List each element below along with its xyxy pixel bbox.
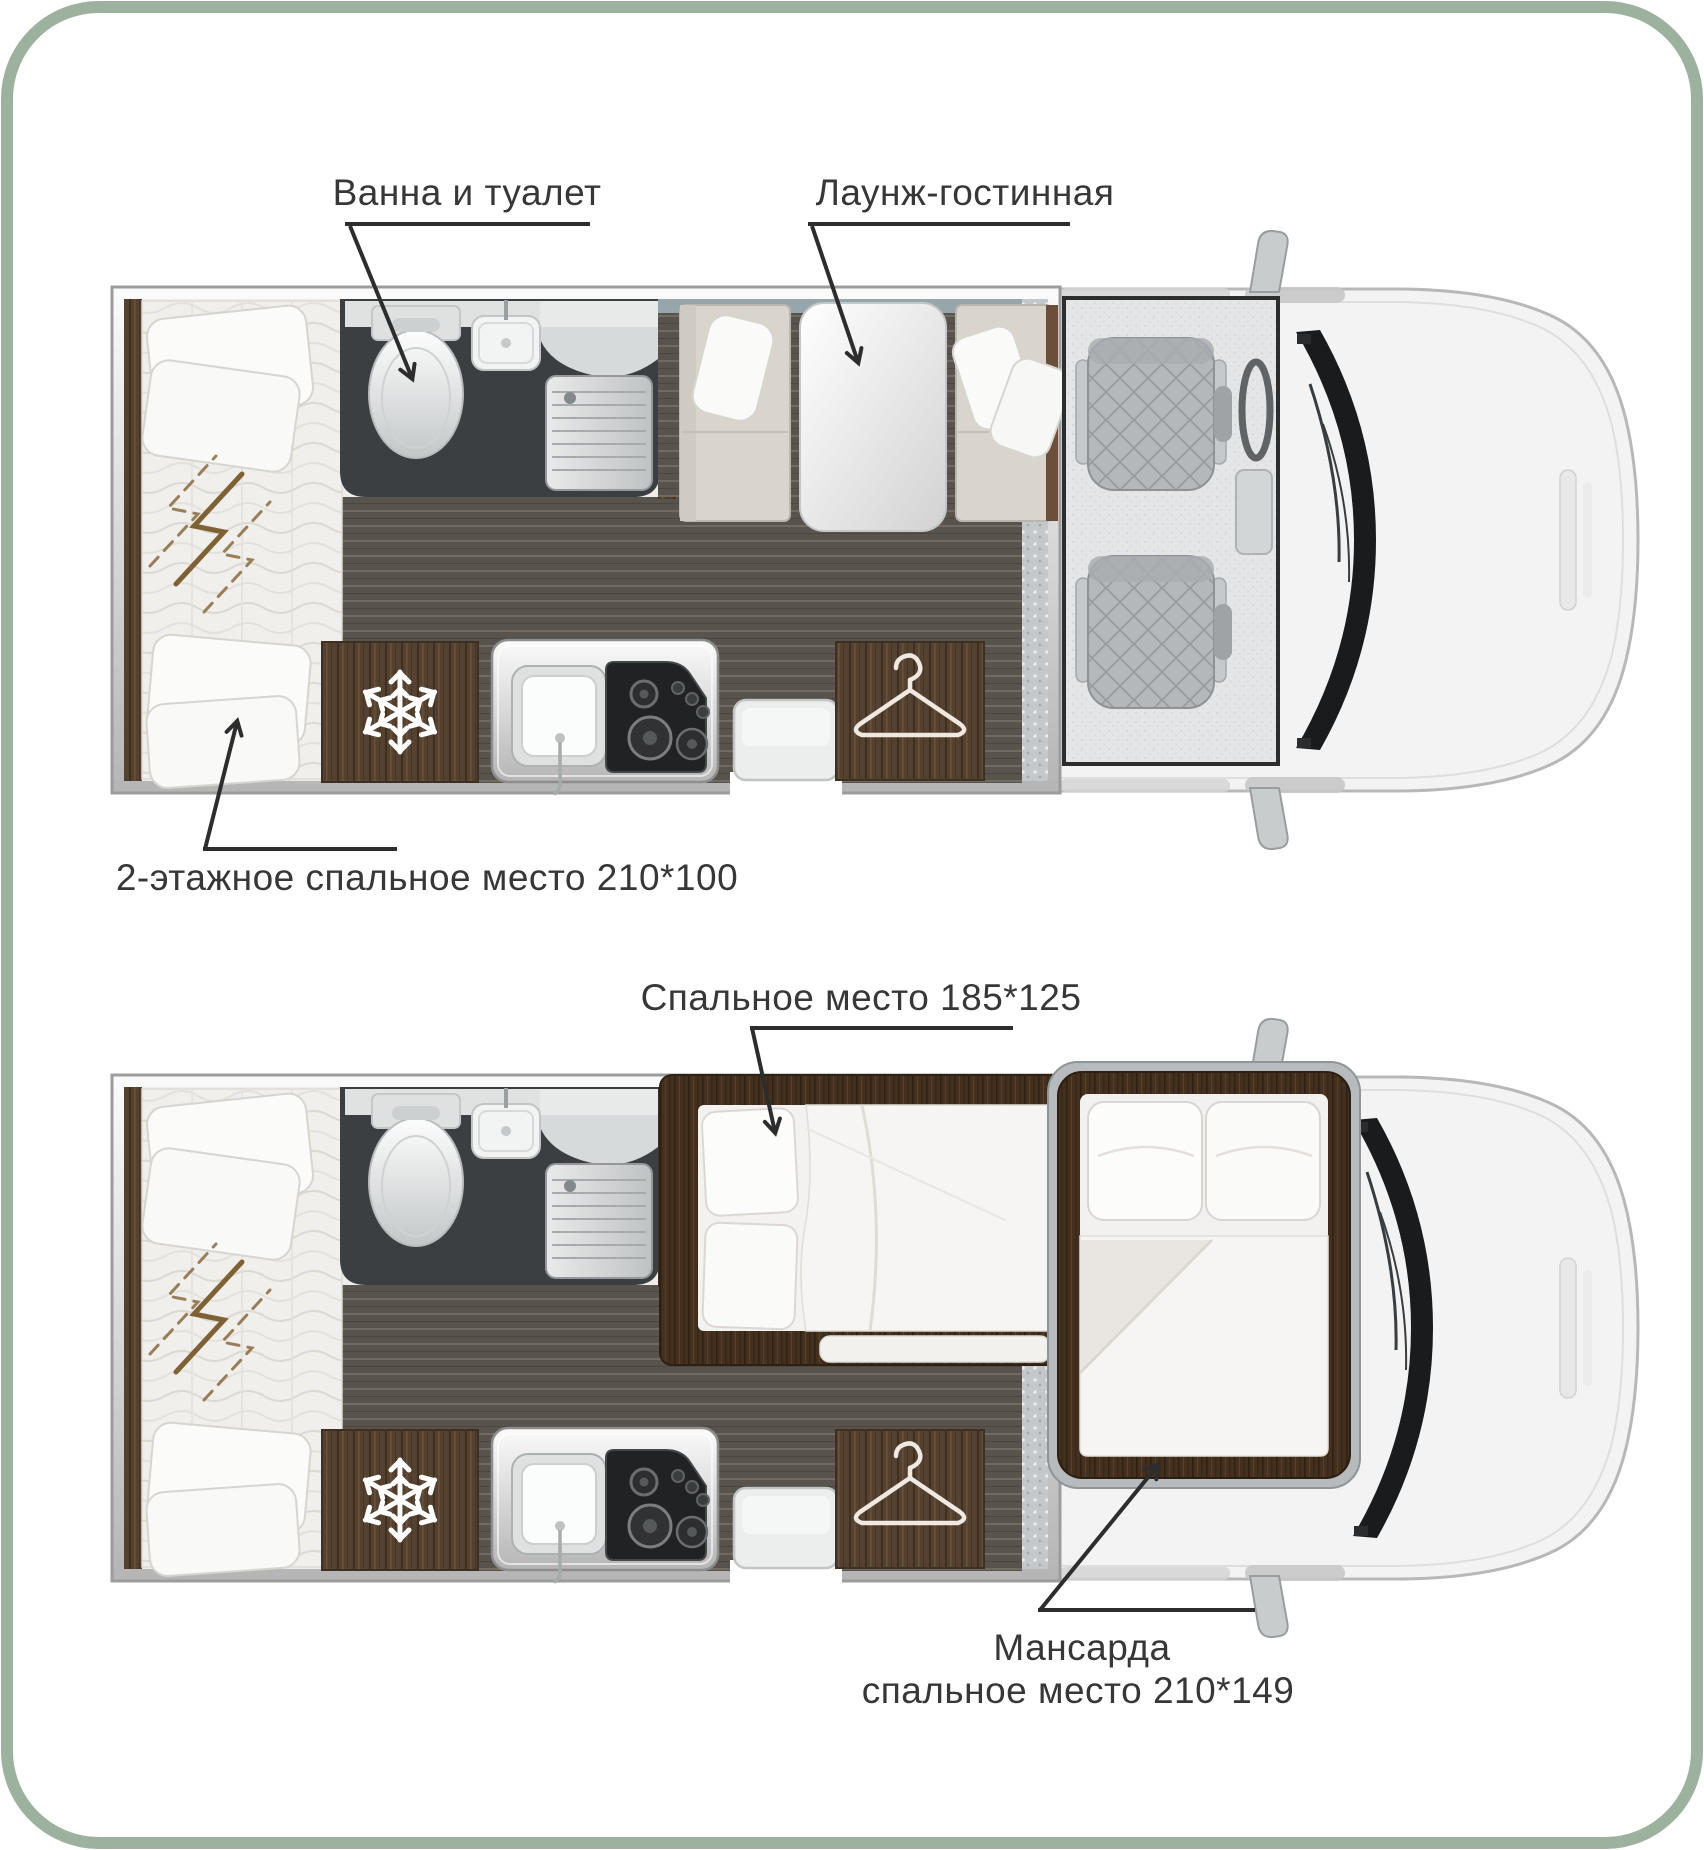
floorplan-illustration: Ванна и туалет Лаунж-гостинная 2-этажное… — [0, 0, 1704, 1850]
cab-console — [1236, 470, 1272, 554]
label-lounge: Лаунж-гостинная — [816, 172, 1115, 213]
main-bed — [660, 1075, 1085, 1365]
lounge-sofa-left — [680, 305, 790, 521]
cab-seat-passenger — [1076, 556, 1232, 708]
label-attic-line1: Мансарда — [993, 1627, 1170, 1668]
floorplan-night — [112, 1019, 1638, 1637]
label-main-bed: Спальное место 185*125 — [641, 977, 1082, 1018]
lounge-sofa-right — [949, 305, 1076, 521]
label-bath-toilet: Ванна и туалет — [333, 172, 602, 213]
lounge-area — [658, 299, 1076, 531]
page-background: Ванна и туалет Лаунж-гостинная 2-этажное… — [0, 0, 1704, 1850]
label-bunk-bed: 2-этажное спальное место 210*100 — [116, 857, 738, 898]
cab-area — [1064, 298, 1278, 764]
label-attic-line2: спальное место 210*149 — [862, 1670, 1295, 1711]
lounge-table — [800, 303, 946, 531]
attic-bed — [1048, 1062, 1360, 1488]
floorplan-day — [112, 231, 1638, 849]
cab-seat-driver — [1076, 338, 1232, 490]
